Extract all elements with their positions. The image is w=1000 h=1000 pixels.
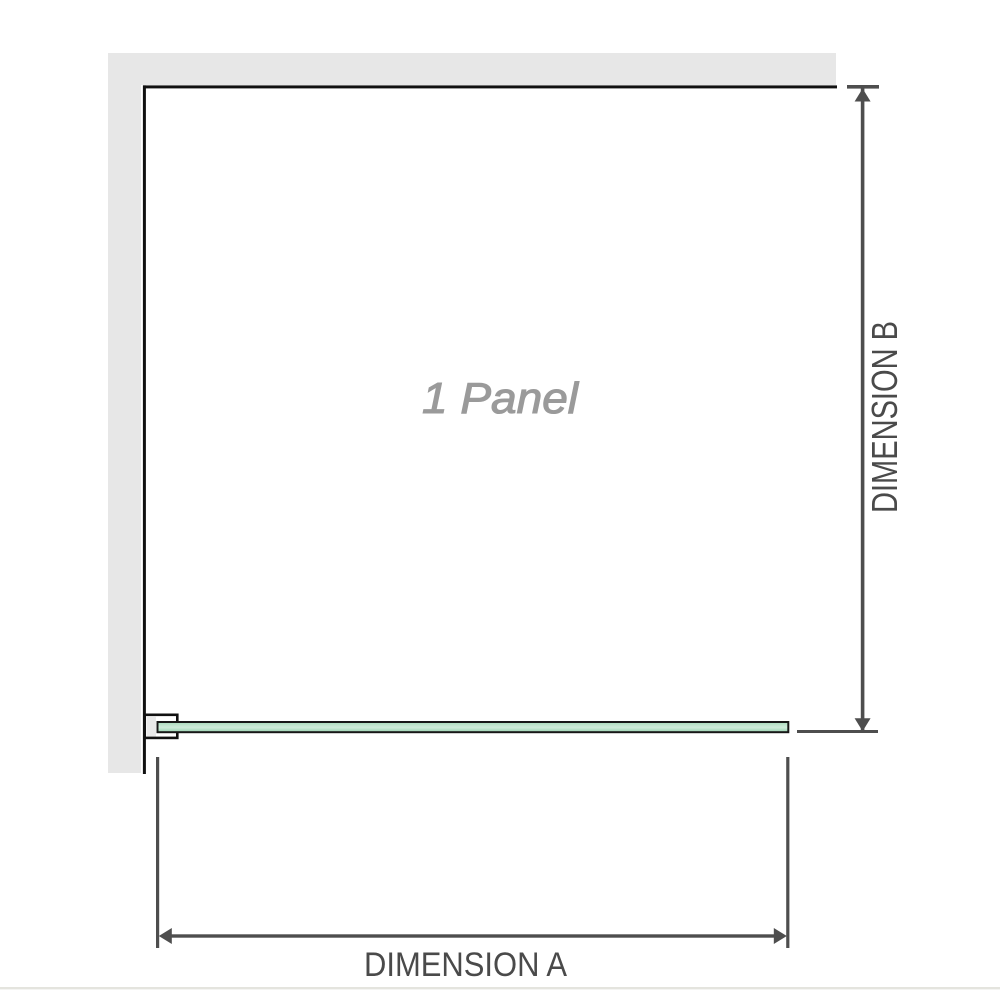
svg-text:DIMENSION B: DIMENSION B [864,321,905,513]
svg-text:DIMENSION A: DIMENSION A [364,946,567,984]
svg-text:1 Panel: 1 Panel [422,374,579,423]
